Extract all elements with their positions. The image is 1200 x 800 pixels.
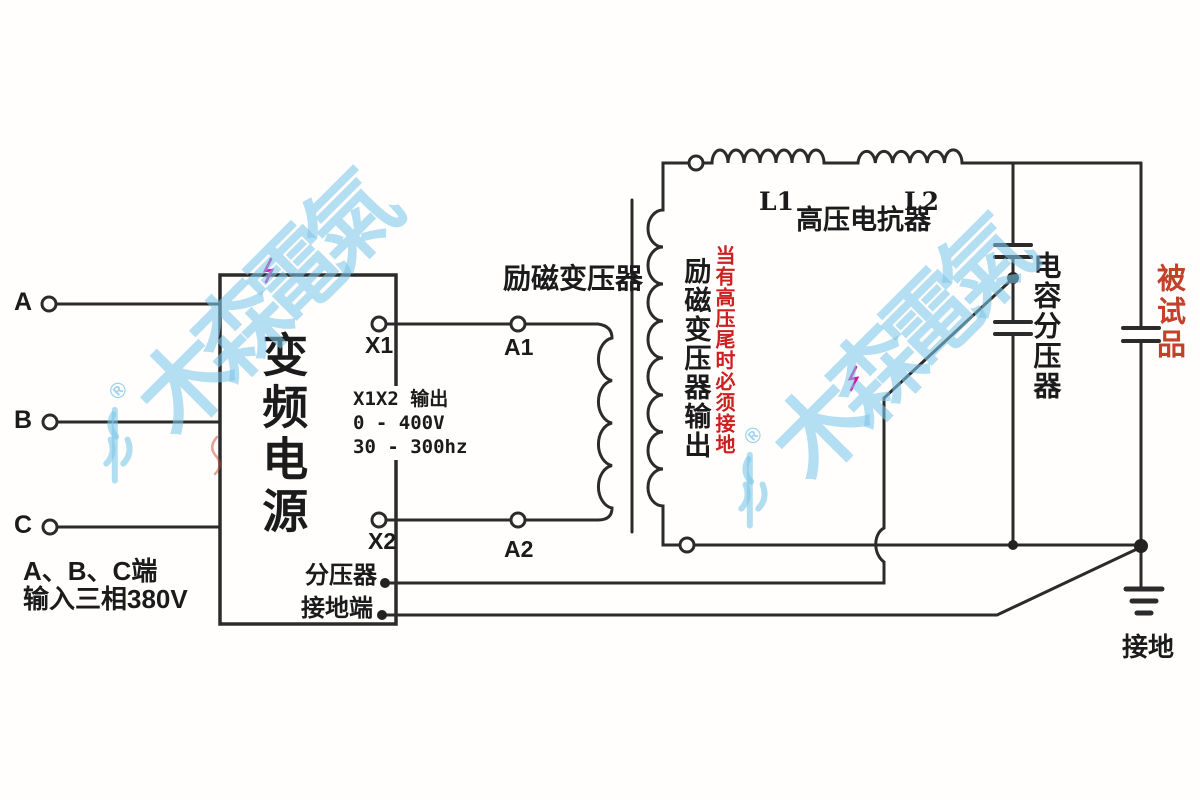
x1-label: X1 xyxy=(365,333,393,357)
terminal-b-label: B xyxy=(14,407,32,433)
terminal-a-label: A xyxy=(14,289,32,315)
divider-tap-node xyxy=(1007,272,1019,284)
output-spec: X1X2 输出 0 - 400V 30 - 300hz xyxy=(350,386,470,460)
input-note-line2: 输入三相380V xyxy=(23,586,188,613)
circuit-diagram: A B C A、B、C端 输入三相380V 变频电源 X1 A1 X2 A2 X… xyxy=(0,0,1200,800)
l1-label: L1 xyxy=(759,189,794,215)
excitation-transformer-label: 励磁变压器 xyxy=(503,264,643,293)
divider-bottom-node xyxy=(1008,540,1018,550)
test-object-label: 被试品 xyxy=(1153,263,1183,362)
terminal-a2-circle xyxy=(511,513,525,527)
terminal-x1-circle xyxy=(372,317,386,331)
vfc-title: 变频电源 xyxy=(258,331,306,539)
secondary-bottom-terminal xyxy=(680,538,694,552)
cursor-mark-icon xyxy=(850,367,857,390)
reactor-label: 高压电抗器 xyxy=(796,206,931,234)
grounding-warning-label: 当有高压尾时必须接地 xyxy=(712,245,733,455)
capacitive-divider-label: 电容分压器 xyxy=(1031,251,1060,401)
divider-terminal-dot xyxy=(380,578,390,588)
ground-terminal-dot xyxy=(377,610,387,620)
a1-label: A1 xyxy=(504,335,533,359)
ground-node xyxy=(1134,539,1148,553)
spec-line-2: 0 - 400V xyxy=(353,411,467,435)
a2-label: A2 xyxy=(504,537,533,561)
terminal-b-circle xyxy=(43,415,57,429)
secondary-top-terminal xyxy=(689,156,703,170)
spec-line-3: 30 - 300hz xyxy=(353,435,467,459)
terminal-c-label: C xyxy=(14,512,32,538)
terminal-a1-circle xyxy=(511,317,525,331)
terminal-c-circle xyxy=(43,520,57,534)
transformer-primary-coil xyxy=(525,324,612,520)
ground-symbol xyxy=(1126,552,1162,613)
terminal-x2-circle xyxy=(372,513,386,527)
input-note-line1: A、B、C端 xyxy=(23,558,157,585)
terminal-a-circle xyxy=(42,297,56,311)
cursor-mark-icon xyxy=(265,259,272,282)
ground-terminal-label: 接地端 xyxy=(301,596,373,621)
reactor-coils xyxy=(703,150,1141,163)
capacitive-divider-branch xyxy=(995,163,1031,545)
input-wires xyxy=(57,304,220,527)
spec-line-1: X1X2 输出 xyxy=(353,387,467,411)
excitation-output-label: 励磁变压器输出 xyxy=(681,257,709,460)
x2-label: X2 xyxy=(368,529,396,553)
divider-terminal-label: 分压器 xyxy=(305,563,377,588)
circuit-svg xyxy=(0,0,1200,800)
ground-label: 接地 xyxy=(1122,634,1174,661)
